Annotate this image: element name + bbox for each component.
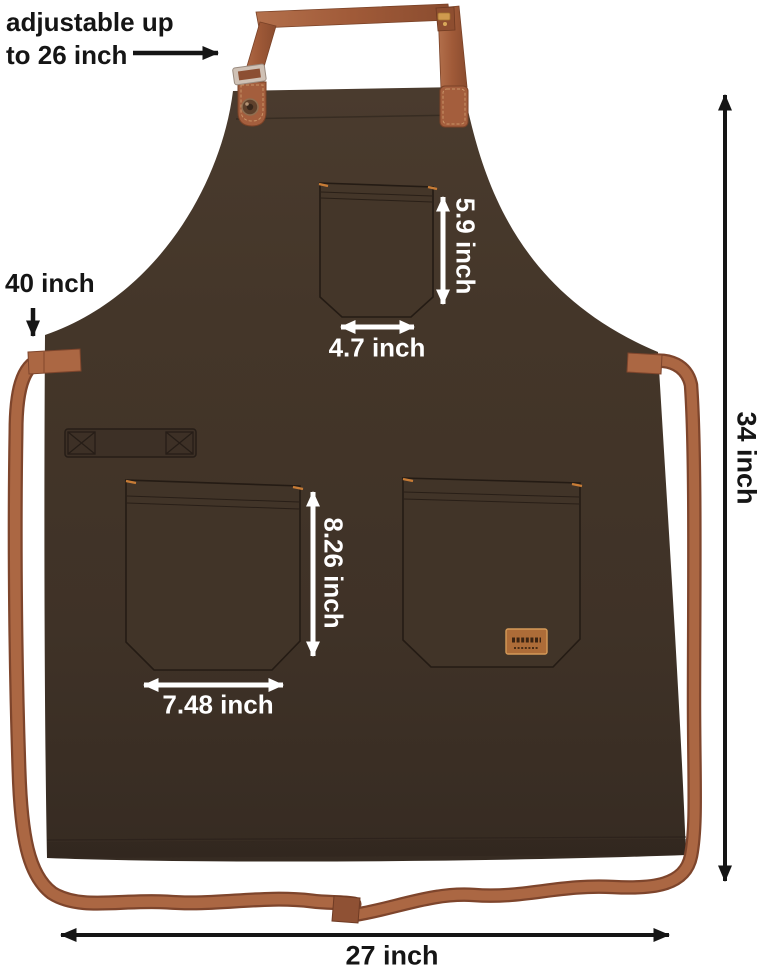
chest-pocket-width-label: 4.7 inch [329,333,426,364]
waist-tab-right [627,353,662,374]
neck-strap-right-end [440,86,468,127]
neck-strap-top-bar [256,4,450,28]
apron-length-label: 34 inch [731,411,762,504]
apron-illustration [0,0,762,973]
neck-adjustable-label-line2: to 26 inch [6,39,174,72]
waist-tab-left [28,349,81,374]
chest-pocket [319,183,437,317]
waist-strap-length-label: 40 inch [5,268,95,299]
brand-tag [506,629,547,654]
apron-width-label: 27 inch [345,941,438,972]
bottom-hem-shade [47,839,686,858]
apron [44,87,686,862]
front-pocket-left [126,480,303,670]
neck-adjustable-label: adjustable up to 26 inch [6,6,174,71]
front-pocket-width-label: 7.48 inch [162,690,273,721]
product-dimension-diagram: adjustable up to 26 inch 40 inch 34 inch… [0,0,762,973]
front-pocket-height-label: 8.26 inch [318,517,349,628]
neck-strap-adjuster [436,7,455,31]
front-pocket-right [403,478,582,667]
snap-button [242,99,258,115]
neck-adjustable-label-line1: adjustable up [6,6,174,39]
chest-pocket-height-label: 5.9 inch [450,198,481,295]
towel-loop [65,429,196,457]
waist-strap-center-fold [332,896,360,923]
